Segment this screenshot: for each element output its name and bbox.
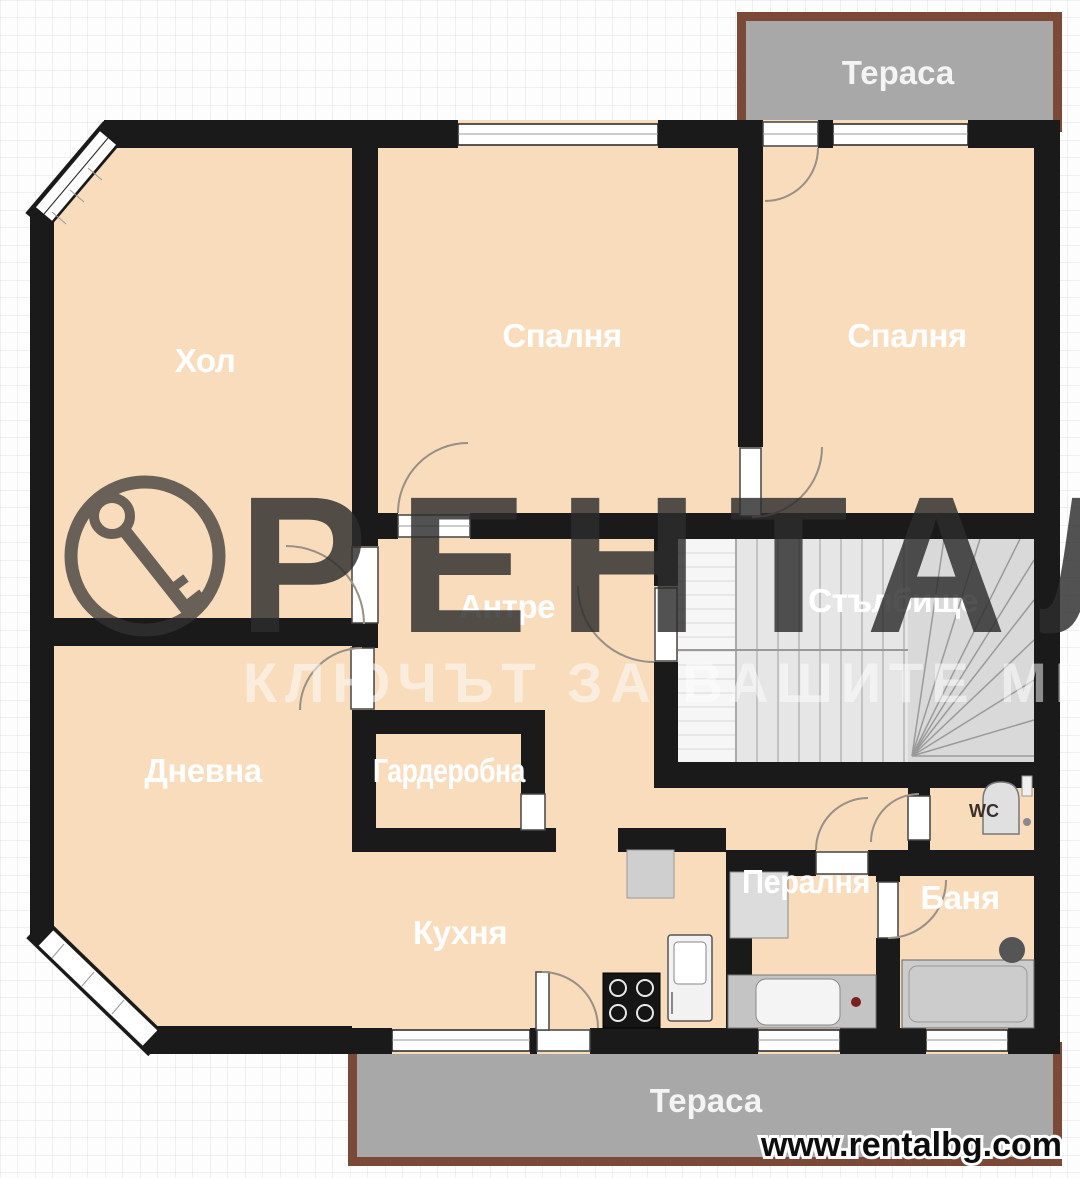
window-bathroom <box>926 1030 1008 1051</box>
room-label-kitchen: Кухня <box>413 914 507 951</box>
room-label-laundry: Пералня <box>742 863 870 900</box>
watermark-brand-text: РЕНТАЛ <box>238 456 1080 674</box>
floor-plan: Тераса Тераса <box>0 0 1080 1178</box>
window-bedroom-right <box>833 124 968 145</box>
window-bedroom-mid <box>458 124 658 145</box>
window-kitchen <box>392 1030 530 1051</box>
stove-icon <box>603 973 660 1028</box>
terrace-top: Тераса <box>737 12 1062 132</box>
room-label-garderobna: Гардеробна <box>373 752 526 789</box>
fridge-icon <box>668 935 712 1021</box>
website-text: www.rentalbg.com <box>760 1126 1062 1164</box>
window-laundry <box>758 1030 840 1051</box>
door-garderobna <box>521 794 545 830</box>
room-label-wc: WC <box>969 801 999 821</box>
room-label-bedroom-mid: Спалня <box>502 317 621 354</box>
room-label-terrace-top: Тераса <box>842 54 955 91</box>
room-label-terrace-bottom: Тераса <box>650 1082 763 1119</box>
room-label-bathroom: Баня <box>920 879 999 916</box>
room-label-hol: Хол <box>175 342 235 379</box>
floor-plan-svg: Тераса Тераса <box>0 0 1080 1178</box>
room-label-bedroom-right: Спалня <box>847 317 966 354</box>
basin-icon <box>999 937 1025 963</box>
bathtub-icon <box>902 960 1034 1028</box>
kitchen-table-icon <box>627 850 674 898</box>
room-label-dnevna: Дневна <box>144 752 263 789</box>
watermark-slogan-text: КЛЮЧЪТ ЗА ВАШИТЕ МЕЧТИ <box>243 651 1080 714</box>
sink-icon <box>728 975 876 1028</box>
